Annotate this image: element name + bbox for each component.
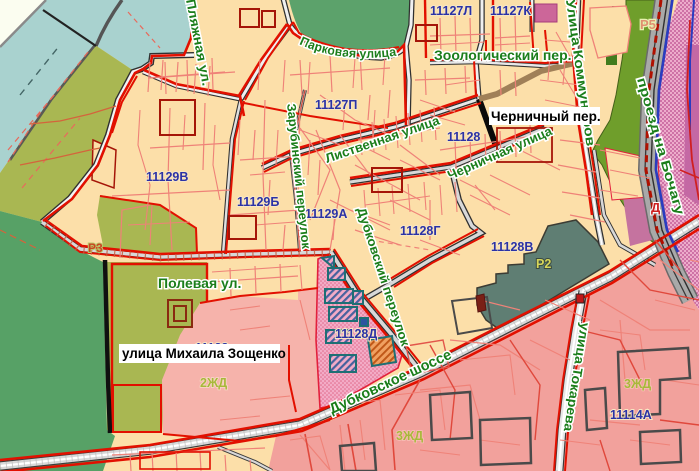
svg-text:11114А: 11114А <box>610 408 652 422</box>
svg-text:11128Г: 11128Г <box>400 224 440 238</box>
svg-text:3ЖД: 3ЖД <box>396 429 423 443</box>
svg-text:Д: Д <box>651 200 661 215</box>
svg-text:Р2: Р2 <box>536 257 551 271</box>
svg-text:11128В: 11128В <box>491 240 533 254</box>
svg-text:Черничный пер.: Черничный пер. <box>491 109 601 124</box>
svg-text:Зоологический пер.: Зоологический пер. <box>434 47 572 63</box>
svg-text:Р5: Р5 <box>640 17 656 32</box>
svg-text:11128: 11128 <box>447 130 480 144</box>
svg-text:11129А: 11129А <box>305 207 347 221</box>
svg-text:11129Б: 11129Б <box>237 195 279 209</box>
svg-text:3ЖД: 3ЖД <box>624 377 651 391</box>
svg-text:11128Д: 11128Д <box>335 327 377 341</box>
svg-text:2ЖД: 2ЖД <box>200 376 227 390</box>
svg-text:11129В: 11129В <box>146 170 188 184</box>
svg-text:11127К: 11127К <box>490 4 531 18</box>
svg-text:Полевая ул.: Полевая ул. <box>158 275 241 291</box>
svg-text:11127П: 11127П <box>315 98 357 112</box>
svg-text:Р3: Р3 <box>88 241 103 255</box>
svg-text:улица Михаила Зощенко: улица Михаила Зощенко <box>122 346 286 361</box>
svg-text:11127Л: 11127Л <box>430 4 472 18</box>
